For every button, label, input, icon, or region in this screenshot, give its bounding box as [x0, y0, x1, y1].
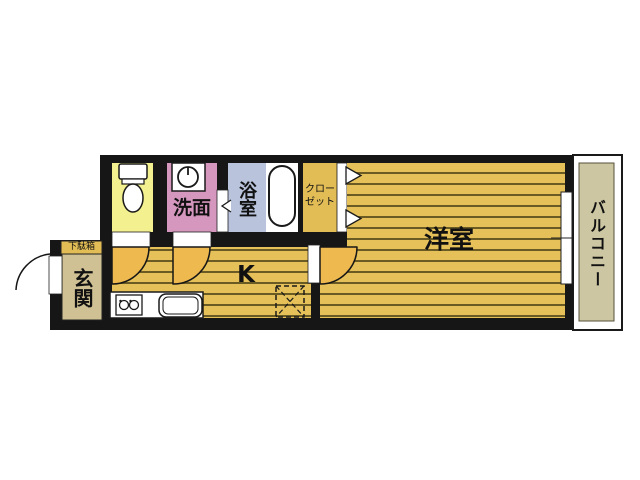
western-room-door-opening [308, 245, 320, 283]
shoe-cabinet-label: 下駄箱 [61, 241, 102, 254]
bathroom-label: 浴室 [236, 169, 256, 229]
toilet-door-opening [112, 232, 150, 247]
stove-knob-dot [129, 300, 131, 302]
bathroom-door-strip [217, 190, 228, 232]
entrance-label: 玄関 [71, 257, 93, 319]
closet-label: クローゼット [303, 183, 337, 209]
entrance-door-opening [49, 256, 62, 294]
kitchen-label: K [232, 262, 260, 288]
washroom-door-opening [173, 232, 211, 247]
floorplan-canvas: 下駄箱 玄関 洗面 浴室 クローゼット K 洋室 バルコニー [0, 0, 640, 480]
toilet-tank [119, 164, 147, 179]
floorplan-drawing [0, 0, 640, 480]
balcony-label: バルコニー [586, 184, 606, 304]
toilet-icon [123, 184, 143, 212]
washroom-label: 洗面 [167, 197, 217, 219]
stove-knob-dot [119, 300, 121, 302]
bathtub-icon [269, 166, 295, 226]
western-room-label: 洋室 [413, 226, 485, 254]
